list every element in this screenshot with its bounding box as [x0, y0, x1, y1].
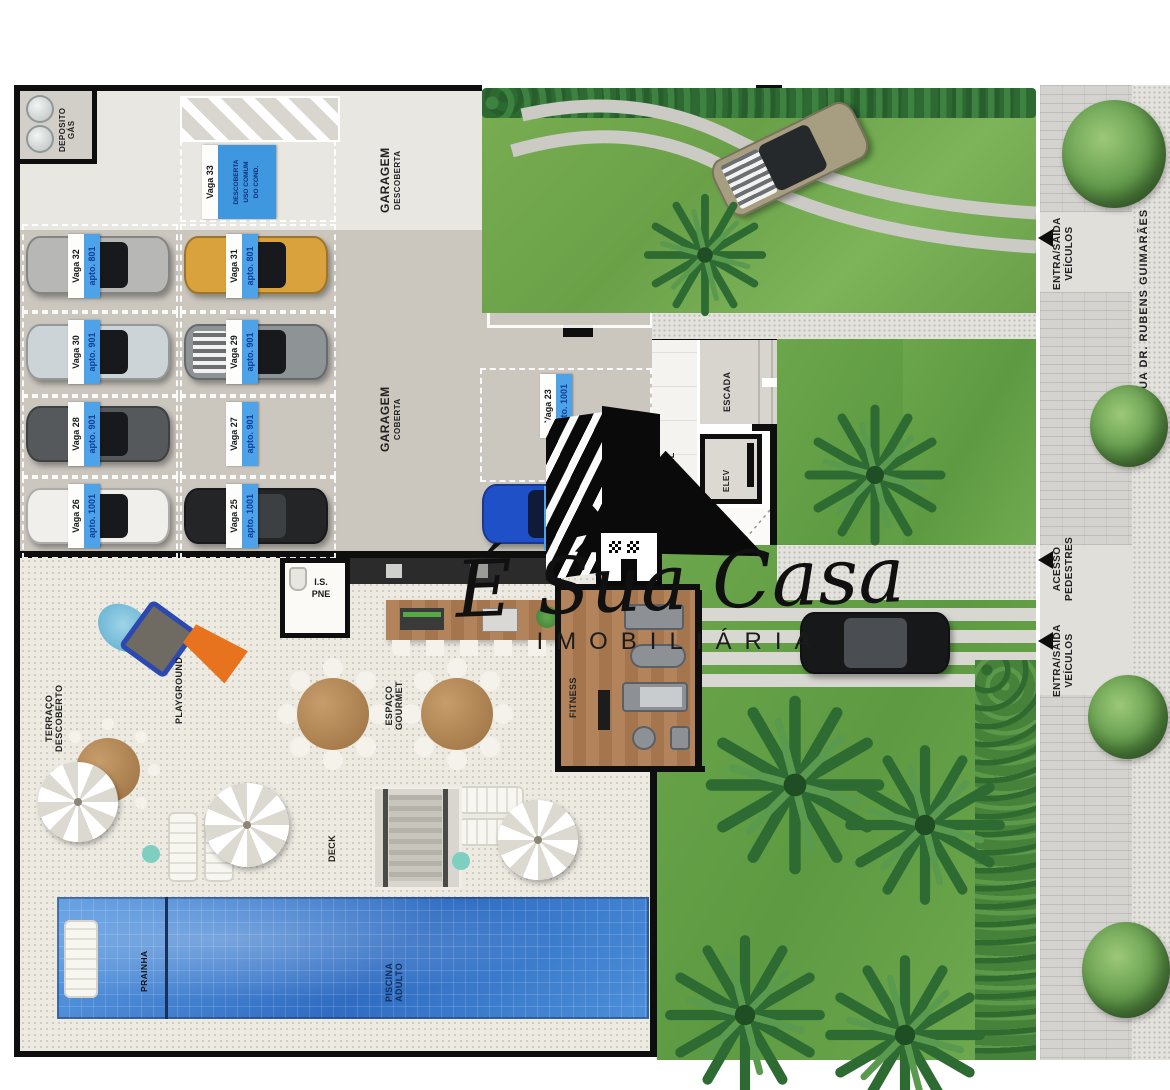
pedestrian-path: [777, 545, 1036, 600]
playground-label: PLAYGROUND: [174, 657, 184, 724]
palm-tree: [640, 190, 770, 320]
car-glass: [528, 490, 595, 538]
vaga-29-tag: Vaga 29apto. 901: [226, 320, 258, 384]
vaga-27-tag: Vaga 27apto. 901: [226, 402, 258, 466]
terraco-label: TERRAÇO DESCOBERTO: [44, 685, 65, 752]
appliance: [470, 564, 488, 578]
palm-tree: [820, 950, 990, 1090]
fitness-wall-left: [555, 558, 561, 772]
site-plan: DEPOSITOGÁS Vaga 33 DESCOBERTAUSO COMUMD…: [0, 0, 1170, 1090]
car-glass: [844, 618, 907, 668]
grill: [400, 608, 444, 630]
gourmet-table: [421, 678, 493, 750]
parasol: [205, 783, 289, 867]
vaga-33-sign: Vaga 33 DESCOBERTAUSO COMUMDO COND.: [202, 145, 276, 219]
bar-stools: [392, 640, 562, 656]
pedestres-label: ACESSO PEDESTRES: [1052, 537, 1075, 601]
prainha-divider: [165, 897, 168, 1019]
fitness-label: FITNESS: [568, 677, 578, 718]
appliance: [386, 564, 402, 578]
fitness-room: [560, 590, 700, 772]
street-tree: [1090, 385, 1168, 467]
sun-lounger: [168, 812, 198, 882]
deck-parasol: [498, 800, 578, 880]
site-wall-bottom: [14, 1051, 657, 1057]
entrance-bottom-label: ENTRA/SAÍDA VEÍCULOS: [1052, 624, 1075, 697]
stair-rail: [383, 789, 388, 887]
vaga-23-tag: Vaga 23apto. 1001: [540, 374, 572, 438]
garagem-coberta-label: GARAGEM COBERTA: [379, 387, 402, 452]
entrance-arrow-top: [1038, 229, 1053, 247]
is-pne-label: I.S.PNE: [301, 577, 341, 600]
fitness-wall-bottom: [560, 766, 705, 772]
plant-pot: [452, 852, 470, 870]
elev-label: ELEV: [722, 470, 731, 493]
vaga-33-rules: DESCOBERTAUSO COMUMDO COND.: [218, 145, 276, 219]
vaga-33-number: Vaga 33: [202, 145, 218, 219]
hall-label: HALL: [666, 452, 676, 478]
pedestrian-arrow: [1038, 551, 1053, 569]
street-tree: [1062, 100, 1166, 208]
street-tree: [1082, 922, 1170, 1018]
no-parking-hatch: [180, 96, 340, 142]
gas-cylinder: [26, 95, 54, 123]
street-tree: [1088, 675, 1168, 759]
gourmet-label: ESPAÇO GOURMET: [384, 681, 405, 730]
cooktop: [482, 608, 518, 632]
vaga-30-tag: Vaga 30apto. 901: [68, 320, 100, 384]
stall-vaga-27: [180, 396, 336, 477]
gourmet-table: [297, 678, 369, 750]
pool-stairs-structure: [372, 786, 462, 890]
car-blue: [482, 484, 642, 544]
vaga-24-tag: apto. 1001: [544, 486, 560, 550]
gym-bench: [598, 690, 610, 730]
fitness-wall-top: [560, 584, 700, 590]
palm-tree: [840, 740, 1010, 910]
herb-plants: [403, 612, 441, 617]
gym-equipment: [670, 726, 690, 750]
gas-cylinder: [26, 125, 54, 153]
vaga-32-tag: Vaga 32apto. 801: [68, 234, 100, 298]
garagem-descoberta-label: GARAGEM DESCOBERTA: [379, 148, 402, 213]
vaga-25-tag: Vaga 25apto. 1001: [226, 484, 258, 548]
stair-steps: [389, 795, 442, 881]
deck-label: DECK: [327, 835, 337, 862]
street-name-label: RUA DR. RUBENS GUIMARÃES: [1138, 209, 1151, 398]
entrance-top-label: ENTRA/SAÍDA VEÍCULOS: [1052, 217, 1075, 290]
fitness-wall-right: [695, 590, 702, 772]
deposito-gas-label: DEPOSITOGÁS: [58, 108, 76, 152]
stair-rail: [443, 789, 448, 887]
car-black-driveway: [800, 612, 950, 674]
gym-equipment: [630, 644, 686, 668]
is-pne-room: I.S.PNE: [280, 558, 350, 638]
elevator-door: [747, 443, 754, 487]
plant-pot: [142, 845, 160, 863]
palm-tree: [800, 400, 950, 550]
treadmill-belt: [640, 687, 682, 707]
piscina-label: PISCINA ADULTO: [384, 963, 405, 1002]
gym-equipment: [624, 604, 684, 630]
escada-label: ESCADA: [722, 372, 732, 412]
bar-table: [386, 600, 566, 640]
vaga-28-tag: Vaga 28apto. 901: [68, 402, 100, 466]
jeep-roof-rack: [193, 331, 228, 374]
in-pool-lounger: [64, 920, 98, 998]
prainha-label: PRAINHA: [140, 950, 150, 992]
parasol: [38, 762, 118, 842]
palm-tree: [660, 930, 830, 1090]
vaga-26-tag: Vaga 26apto. 1001: [68, 484, 100, 548]
entrance-arrow-bottom: [1038, 632, 1053, 650]
vaga-31-tag: Vaga 31apto. 801: [226, 234, 258, 298]
treadmill: [622, 682, 688, 712]
kitchen-counter: [350, 558, 560, 584]
gym-ball: [632, 726, 656, 750]
